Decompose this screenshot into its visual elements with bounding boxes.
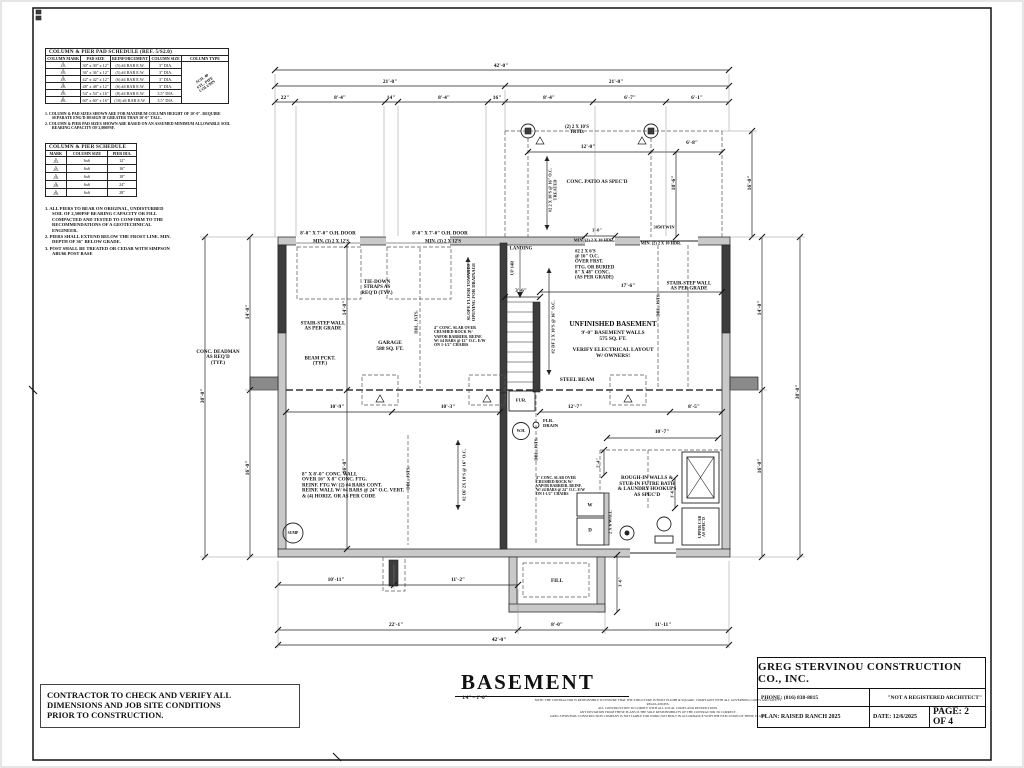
annotation: UPPER CABAS SPEC'D [698, 516, 706, 538]
annotation: UP 14R [511, 261, 516, 275]
contractor-note-line: PRIOR TO CONSTRUCTION. [47, 710, 293, 720]
dim-label: 14'-0" [758, 301, 764, 315]
annotation: SUMP [288, 531, 299, 535]
annotation: MIN. (2) 2 X 10 HDR. [574, 239, 614, 244]
dim-label: 8'-5" [688, 405, 700, 411]
dim-label: 6'-8" [686, 141, 698, 147]
annotation: #2 DF 2X 10'S @ 16" O.C. [463, 449, 468, 501]
plan-name: PLAN: RAISED RANCH 2025 [758, 707, 870, 727]
annotation: CONC. DEADMANAS REQ'D(TYP.) [196, 350, 239, 366]
pier-schedule-notes: 1. ALL PIERS TO BEAR ON ORIGINAL, UNDIST… [45, 206, 175, 258]
annotation: LANDING [510, 246, 533, 251]
dim-label: 3'-6" [619, 577, 624, 587]
dim-label: 16'-0" [343, 459, 349, 473]
contractor-note-line: DIMENSIONS AND JOB SITE CONDITIONS [47, 700, 293, 710]
dim-label: 11'-11" [655, 623, 671, 629]
annotation: 9'-0" BASEMENT WALLS575 SQ. FT. [581, 331, 644, 343]
dim-label: 16" [493, 96, 501, 102]
dim-label: 8'-0" [551, 623, 563, 629]
annotation: (2) 2 X 10'STRTD. [565, 125, 589, 135]
dim-label: 16'-0" [246, 461, 252, 475]
annotation: DBL. JSTS. [657, 293, 662, 316]
dim-label: 10'-6" [672, 176, 678, 190]
plan-title: BASEMENT [455, 670, 629, 697]
annotation: 8'-0" X 7'-0" O.H. DOOR [412, 231, 468, 236]
dim-label: 8'-4" [543, 96, 555, 102]
page-number: PAGE: 2 OF 4 [930, 707, 985, 727]
pad-schedule-table: COLUMN & PIER PAD SCHEDULE (REF. 5/S2.0)… [45, 48, 229, 104]
drawing-sheet: { "pad_schedule": { "title": "COLUMN & P… [0, 0, 1024, 768]
dim-label: 10'-7" [655, 430, 669, 436]
dim-label: 6'-7" [624, 96, 636, 102]
dim-label: 17'-6" [621, 284, 635, 290]
annotation: #2 DF 2 X 10'S @ 16" O.C. [552, 300, 557, 353]
dim-label: 2'-4" [597, 458, 602, 468]
annotation: 8" X 8'-0" CONC. WALLOVER 16" X 8" CONC.… [302, 473, 404, 500]
annotation: BEAM PCKT.(TYP.) [304, 357, 335, 368]
dim-label: 30'-0" [201, 389, 207, 403]
annotation: #2 2 X 6'S@ 16" O.C.OVER FRST.FTG. OR BU… [575, 249, 614, 280]
annotation: VERIFY ELECTRICAL LAYOUTW/ OWNERS! [572, 348, 653, 360]
dim-label: 22'-1" [389, 623, 403, 629]
annotation: STAIR-STEP WALLAS PER GRADE [301, 322, 346, 333]
annotation: FLR.DRAIN [543, 419, 558, 429]
dim-label: 42'-0" [494, 64, 508, 70]
annotation: #2 2 X 10'S @ 16" O.C.TREATED [548, 168, 558, 212]
contractor-note: CONTRACTOR TO CHECK AND VERIFY ALL DIMEN… [40, 684, 300, 728]
annotation: MIN. (3) 2 X 12'S [425, 239, 461, 244]
company-name: GREG STERVINOU CONSTRUCTION CO., INC. [758, 658, 985, 689]
annotation: MIN. (2) 2 X 10 HDR. [641, 242, 681, 247]
annotation: DBL. JSTS. [407, 466, 412, 489]
dim-label: 21'-0" [383, 80, 397, 86]
annotation: W [588, 503, 593, 508]
dim-label: 11'-2" [451, 578, 465, 584]
plan-date: DATE: 12/6/2025 [870, 707, 930, 727]
dim-label: 16'-0" [758, 459, 764, 473]
annotation: W.H. [517, 429, 526, 433]
dim-label: 21'-0" [609, 80, 623, 86]
dim-label: 3'-0" [592, 229, 602, 234]
annotation: DBL. JSTS. [535, 437, 540, 460]
dim-label: 16'-0" [748, 176, 754, 190]
annotation: 4" CONC. SLAB OVERCRUSHED ROCK W/VAPOR B… [536, 476, 585, 496]
dim-label: 12'-7" [568, 405, 582, 411]
annotation: STAIR-STEP WALLAS PER GRADE [667, 282, 712, 293]
dim-label: 12'-0" [581, 145, 595, 151]
dim-label: 14'-0" [246, 305, 252, 319]
annotation: GARAGE588 SQ. FT. [376, 341, 403, 353]
dim-label: 22" [281, 96, 289, 102]
dim-label: 10'-3" [441, 405, 455, 411]
annotation: D [588, 528, 592, 533]
phone: PHONE: (816) 838-8815 [758, 689, 870, 706]
fine-print-disclaimer: NOTE: THE CONTRACTOR IS RESPONSIBLE TO E… [528, 698, 788, 718]
pier-schedule-table: COLUMN & PIER SCHEDULEMARKCOLUMN SIZEPIE… [45, 143, 137, 197]
annotation: ROUGH-IN WALLS &STUB-IN FUTRE BATH& LAUN… [618, 476, 676, 498]
annotation: UNFINISHED BASEMENT [569, 321, 656, 329]
dim-label: 6'-1" [691, 96, 703, 102]
annotation: SLOPE FLOOR TOWARDSOPENING FOR DRAINAGE [467, 263, 477, 321]
contractor-note-line: CONTRACTOR TO CHECK AND VERIFY ALL [47, 690, 293, 700]
dim-label: 14'-0" [343, 301, 349, 315]
annotation: STEEL BEAM [560, 378, 595, 384]
dim-label: 8'-4" [438, 96, 450, 102]
annotation: 8'-0" X 7'-0" O.H. DOOR [300, 231, 356, 236]
dim-label: 3'-6" [515, 289, 527, 295]
annotation: FUR. [516, 399, 527, 404]
dim-label: 42'-0" [492, 638, 506, 644]
annotation: 3050TWIN [654, 226, 675, 231]
annotation: 2 X 6 WALL [609, 510, 614, 534]
annotation: FILL [551, 579, 563, 585]
plan-scale: 1/4" = 1'-0" [462, 696, 487, 701]
annotation: TIE-DOWNSTRAPS ASREQ'D (TYP.) [361, 280, 392, 296]
dim-label: 10'-11" [328, 578, 345, 584]
dim-label: 30'-0" [796, 385, 802, 399]
annotation: MIN. (3) 2 X 12'S [313, 239, 349, 244]
dim-label: 8'-4" [334, 96, 346, 102]
dim-label: 14" [387, 96, 395, 102]
dim-label: 10'-9" [330, 405, 344, 411]
architect-note: "NOT A REGISTERED ARCHITECT" [870, 689, 985, 706]
annotation: CONC. PATIO AS SPEC'D [567, 180, 628, 186]
title-block: GREG STERVINOU CONSTRUCTION CO., INC. PH… [757, 657, 986, 728]
pad-schedule-notes: 1. COLUMN & PAD SIZES SHOWN ARE FOR MAXI… [45, 112, 233, 132]
annotation: DBL. JSTS. [415, 310, 420, 333]
annotation: 4" CONC. SLAB OVERCRUSHED ROCK W/VAPOR B… [434, 326, 486, 348]
